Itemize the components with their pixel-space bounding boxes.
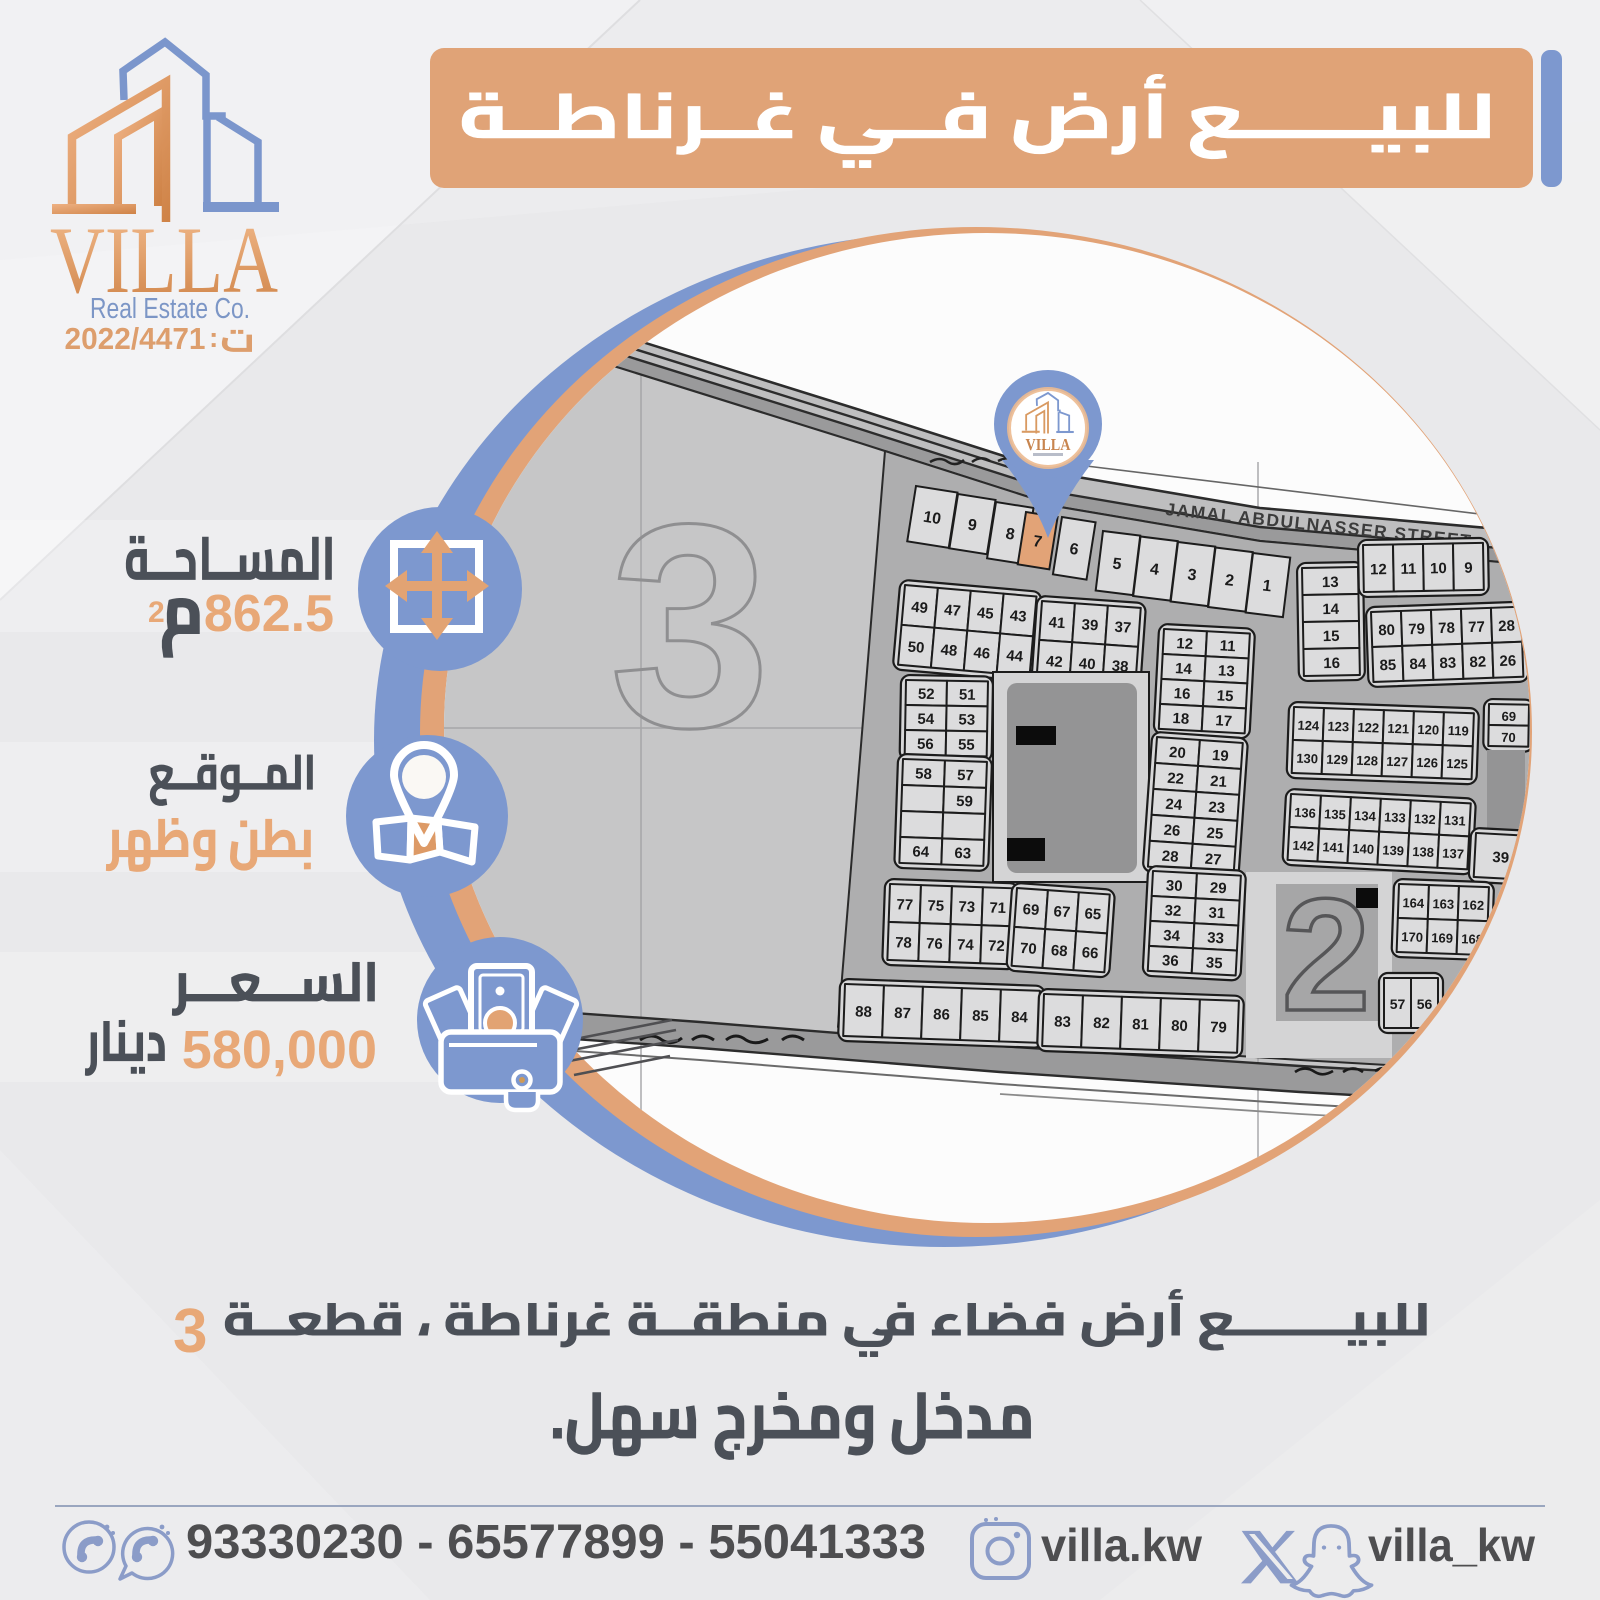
svg-text:139: 139: [1382, 842, 1404, 858]
svg-text:16: 16: [1173, 685, 1191, 703]
svg-text:3: 3: [609, 464, 770, 788]
svg-text:26: 26: [1499, 652, 1516, 670]
svg-text:34: 34: [1163, 927, 1181, 945]
svg-text:40: 40: [1078, 655, 1096, 673]
svg-text:3: 3: [173, 1297, 207, 1366]
svg-text:83: 83: [1054, 1013, 1071, 1031]
svg-text:14: 14: [1322, 601, 1340, 618]
svg-text:74: 74: [957, 936, 975, 954]
svg-text:56: 56: [917, 736, 934, 753]
svg-text:75: 75: [927, 897, 944, 915]
svg-text:141: 141: [1322, 839, 1344, 855]
svg-text:123: 123: [1327, 719, 1349, 735]
svg-text:164: 164: [1402, 895, 1425, 911]
svg-text:59: 59: [956, 793, 973, 811]
svg-text:53: 53: [958, 711, 975, 728]
svg-text:33: 33: [1207, 929, 1225, 947]
svg-text:80: 80: [1378, 622, 1395, 640]
svg-text:49: 49: [911, 599, 929, 617]
svg-text:18: 18: [1172, 710, 1190, 728]
svg-text:170: 170: [1401, 929, 1423, 945]
svg-text:81: 81: [1132, 1016, 1149, 1034]
svg-text:134: 134: [1354, 808, 1377, 824]
svg-text:84: 84: [1011, 1009, 1029, 1027]
svg-text:villa.kw: villa.kw: [1041, 1519, 1202, 1571]
svg-text:22: 22: [1167, 770, 1185, 788]
svg-text:86: 86: [933, 1006, 950, 1024]
svg-text:43: 43: [1009, 607, 1027, 625]
svg-text:119: 119: [1448, 723, 1469, 739]
svg-text:50: 50: [907, 639, 925, 657]
svg-text:2022/4471: 2022/4471: [65, 321, 206, 356]
svg-text:42: 42: [1045, 653, 1063, 671]
svg-text:78: 78: [1438, 620, 1455, 638]
svg-text:87: 87: [894, 1005, 911, 1023]
svg-text:24: 24: [1165, 796, 1183, 814]
svg-text:9: 9: [1464, 560, 1473, 577]
svg-text:25: 25: [1206, 825, 1224, 843]
svg-text:15: 15: [1323, 628, 1340, 645]
svg-text:69: 69: [1501, 709, 1516, 724]
svg-text:39: 39: [1492, 849, 1510, 867]
svg-text:133: 133: [1384, 809, 1406, 825]
svg-text:28: 28: [1161, 848, 1179, 866]
svg-text:83: 83: [1439, 655, 1456, 673]
svg-text:57: 57: [1390, 996, 1406, 1012]
svg-text:48: 48: [940, 641, 958, 659]
svg-text:85: 85: [972, 1007, 989, 1025]
svg-text:44: 44: [1006, 647, 1025, 665]
svg-text:136: 136: [1294, 805, 1316, 821]
svg-text:19: 19: [1211, 747, 1229, 765]
svg-text:56: 56: [1417, 996, 1433, 1012]
svg-text:140: 140: [1352, 841, 1374, 857]
svg-text:127: 127: [1386, 754, 1408, 770]
svg-text:76: 76: [926, 935, 943, 953]
svg-text:65: 65: [1084, 905, 1102, 923]
svg-text:47: 47: [943, 602, 961, 620]
svg-text:13: 13: [1322, 574, 1339, 591]
svg-text:122: 122: [1357, 720, 1379, 736]
svg-text:129: 129: [1326, 752, 1348, 768]
svg-text:128: 128: [1356, 753, 1378, 769]
svg-text:66: 66: [1081, 944, 1099, 962]
svg-text:29: 29: [1209, 880, 1227, 898]
svg-text:121: 121: [1387, 721, 1409, 737]
svg-text:51: 51: [959, 686, 976, 703]
svg-text:73: 73: [958, 898, 975, 916]
svg-text:135: 135: [1324, 806, 1346, 822]
svg-text:142: 142: [1292, 838, 1314, 854]
svg-text:78: 78: [895, 934, 912, 952]
svg-text:23: 23: [1208, 799, 1226, 817]
svg-text:67: 67: [1053, 903, 1071, 921]
svg-text:36: 36: [1162, 952, 1180, 970]
svg-text:55: 55: [958, 736, 975, 753]
svg-text:69: 69: [1022, 901, 1040, 919]
svg-text:70: 70: [1019, 940, 1037, 958]
svg-text:13: 13: [1218, 662, 1236, 680]
svg-text:37: 37: [1114, 619, 1132, 637]
svg-text:27: 27: [1204, 851, 1222, 869]
svg-text:35: 35: [1205, 954, 1223, 972]
svg-text:862.5: 862.5: [204, 585, 334, 643]
svg-text:88: 88: [855, 1003, 872, 1021]
svg-text:VILLA: VILLA: [1026, 435, 1072, 454]
svg-text:169: 169: [1431, 930, 1453, 946]
svg-text:126: 126: [1416, 755, 1438, 771]
svg-text:54: 54: [917, 711, 935, 728]
svg-text:63: 63: [954, 845, 971, 863]
svg-text:villa_kw: villa_kw: [1368, 1519, 1535, 1571]
svg-text:82: 82: [1093, 1015, 1110, 1033]
svg-text:84: 84: [1409, 656, 1427, 674]
svg-text:30: 30: [1165, 877, 1183, 895]
svg-text:120: 120: [1417, 722, 1439, 738]
svg-text:16: 16: [1323, 655, 1340, 672]
svg-text:41: 41: [1048, 614, 1066, 632]
svg-text:580,000: 580,000: [182, 1020, 377, 1080]
svg-text:137: 137: [1442, 846, 1464, 862]
svg-text:71: 71: [989, 899, 1006, 917]
svg-text:10: 10: [1430, 560, 1447, 577]
svg-text:58: 58: [915, 765, 932, 783]
svg-text:20: 20: [1169, 744, 1187, 762]
svg-text:138: 138: [1412, 844, 1434, 860]
svg-text:68: 68: [1050, 942, 1068, 960]
svg-text:32: 32: [1164, 902, 1182, 920]
svg-text:15: 15: [1216, 687, 1234, 705]
svg-text:46: 46: [973, 644, 991, 662]
svg-text:80: 80: [1171, 1017, 1188, 1035]
svg-text:31: 31: [1208, 904, 1226, 922]
svg-text:10: 10: [922, 509, 942, 529]
svg-text:26: 26: [1163, 822, 1181, 840]
svg-text:2: 2: [148, 596, 165, 629]
svg-text:79: 79: [1210, 1019, 1227, 1037]
svg-text:162: 162: [1462, 897, 1484, 913]
svg-text:79: 79: [1408, 621, 1425, 639]
svg-text:77: 77: [1468, 619, 1485, 637]
svg-text:12: 12: [1370, 561, 1387, 578]
svg-text:39: 39: [1081, 616, 1099, 634]
svg-text:21: 21: [1210, 773, 1228, 791]
svg-text:17: 17: [1215, 712, 1233, 730]
svg-text:52: 52: [918, 686, 935, 703]
svg-text:85: 85: [1379, 657, 1396, 675]
svg-text:70: 70: [1501, 730, 1516, 745]
svg-text:131: 131: [1444, 813, 1466, 829]
svg-text:163: 163: [1432, 896, 1454, 912]
svg-text:132: 132: [1414, 811, 1436, 827]
svg-text:2: 2: [1282, 865, 1371, 1044]
svg-text:72: 72: [988, 937, 1005, 955]
svg-text:82: 82: [1469, 654, 1486, 672]
svg-text:93330230 - 65577899 - 55041333: 93330230 - 65577899 - 55041333: [186, 1516, 926, 1569]
svg-text:125: 125: [1446, 756, 1468, 772]
svg-text:130: 130: [1296, 751, 1318, 767]
svg-text:64: 64: [912, 843, 930, 861]
svg-text:57: 57: [957, 767, 974, 785]
svg-text:77: 77: [896, 896, 913, 914]
svg-text::: :: [209, 322, 218, 353]
svg-text:11: 11: [1219, 637, 1236, 655]
svg-text:14: 14: [1175, 660, 1193, 678]
svg-text:45: 45: [976, 604, 994, 622]
svg-text:11: 11: [1400, 561, 1416, 578]
svg-text:12: 12: [1176, 635, 1194, 653]
svg-text:124: 124: [1297, 718, 1320, 734]
svg-text:28: 28: [1498, 617, 1515, 635]
